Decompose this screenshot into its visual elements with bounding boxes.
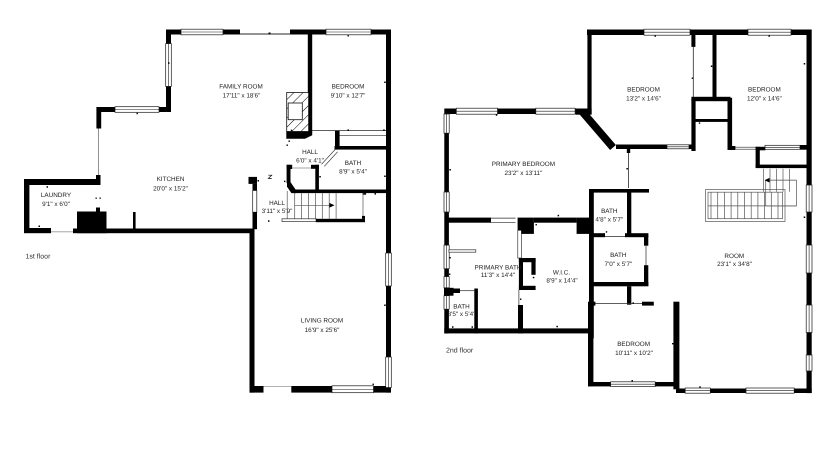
svg-text:23'2" x 13'11": 23'2" x 13'11" — [504, 170, 542, 177]
svg-text:HALL: HALL — [302, 149, 318, 156]
svg-text:LAUNDRY: LAUNDRY — [41, 192, 72, 199]
svg-text:BATH: BATH — [453, 303, 470, 310]
svg-text:3'11" x 5'9": 3'11" x 5'9" — [262, 208, 293, 215]
svg-text:2nd floor: 2nd floor — [446, 346, 474, 354]
svg-text:17'11" x 18'6": 17'11" x 18'6" — [223, 93, 261, 100]
svg-text:8'9" x 14'4": 8'9" x 14'4" — [546, 277, 577, 284]
svg-text:4'8" x 5'7": 4'8" x 5'7" — [595, 217, 623, 224]
svg-text:PRIMARY BATH: PRIMARY BATH — [475, 265, 522, 272]
svg-text:BATH: BATH — [345, 160, 362, 167]
svg-text:12'0" x 14'6": 12'0" x 14'6" — [747, 96, 782, 103]
svg-text:W.I.C.: W.I.C. — [553, 270, 571, 277]
svg-text:PRIMARY BEDROOM: PRIMARY BEDROOM — [492, 161, 555, 168]
svg-text:FAMILY ROOM: FAMILY ROOM — [219, 83, 262, 90]
svg-text:HALL: HALL — [269, 200, 285, 207]
svg-text:BEDROOM: BEDROOM — [617, 341, 650, 348]
svg-text:BEDROOM: BEDROOM — [627, 86, 660, 93]
svg-text:3'5" x 5'4": 3'5" x 5'4" — [448, 311, 476, 318]
svg-text:13'2" x 14'6": 13'2" x 14'6" — [626, 96, 661, 103]
svg-text:9'1" x 6'0": 9'1" x 6'0" — [42, 201, 70, 208]
svg-text:6'0" x 4'1": 6'0" x 4'1" — [296, 157, 324, 164]
svg-text:8'9" x 5'4": 8'9" x 5'4" — [339, 169, 367, 176]
svg-text:ROOM: ROOM — [724, 253, 744, 260]
svg-text:16'9" x 25'6": 16'9" x 25'6" — [305, 327, 340, 334]
svg-text:LIVING ROOM: LIVING ROOM — [301, 318, 343, 325]
svg-text:23'1" x 34'8": 23'1" x 34'8" — [717, 261, 752, 268]
svg-text:BATH: BATH — [601, 208, 618, 215]
svg-text:KITCHEN: KITCHEN — [157, 176, 185, 183]
svg-text:20'0" x 15'2": 20'0" x 15'2" — [153, 185, 188, 192]
svg-text:7'0" x 5'7": 7'0" x 5'7" — [605, 261, 633, 268]
svg-text:11'3" x 14'4": 11'3" x 14'4" — [481, 272, 515, 279]
svg-text:BEDROOM: BEDROOM — [748, 86, 781, 93]
svg-text:9'10" x 12'7": 9'10" x 12'7" — [331, 93, 366, 100]
svg-text:BEDROOM: BEDROOM — [332, 83, 365, 90]
svg-text:1st floor: 1st floor — [26, 252, 52, 260]
svg-text:10'11" x 10'2": 10'11" x 10'2" — [615, 350, 653, 357]
svg-text:BATH: BATH — [610, 252, 627, 259]
